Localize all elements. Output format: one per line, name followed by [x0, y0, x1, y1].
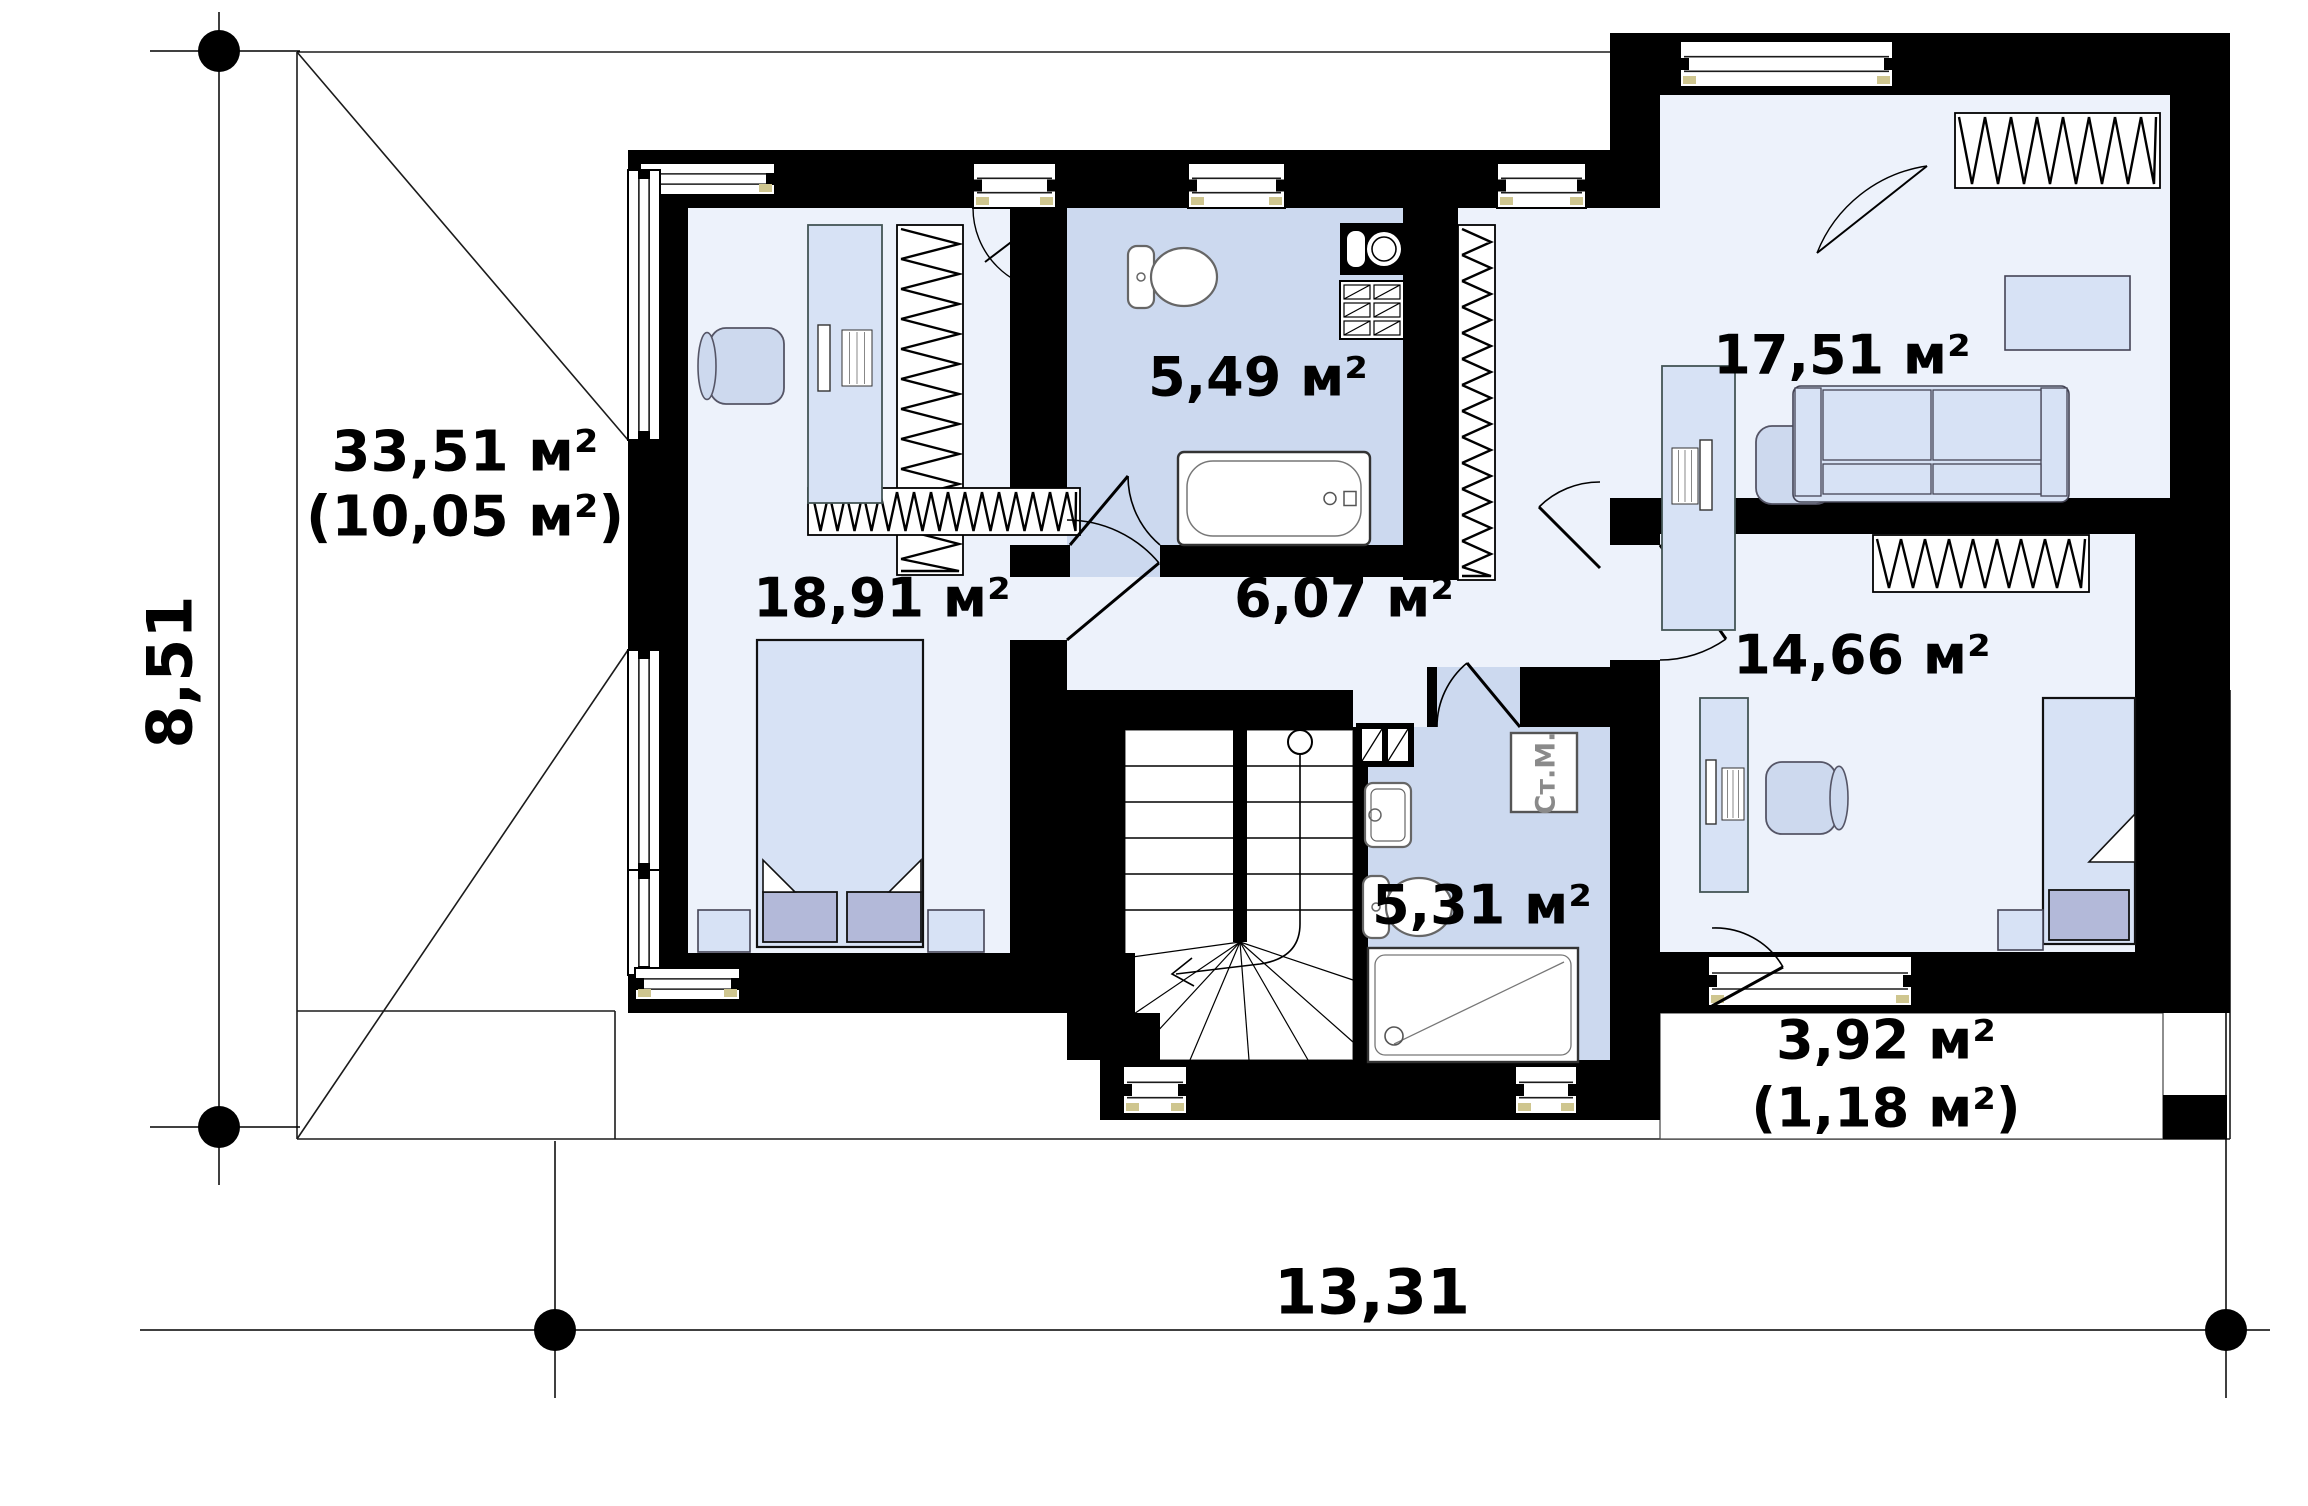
window-opening	[628, 870, 660, 975]
window-nub	[1680, 58, 1689, 70]
roof-line	[297, 650, 628, 1139]
window-sill	[759, 184, 772, 192]
wall	[2135, 534, 2230, 952]
window-nub	[1497, 180, 1506, 192]
bathtub	[1178, 452, 1370, 545]
window-sill	[1269, 197, 1282, 205]
win-terrace-door	[1708, 956, 1912, 1006]
hall-area: 6,07 м²	[1234, 567, 1454, 630]
wardrobe-office	[1955, 113, 2160, 188]
bed-bedroom	[757, 640, 923, 947]
window-sill	[1191, 197, 1204, 205]
window-nub	[1178, 1084, 1187, 1096]
window-sill	[1877, 76, 1890, 84]
window-sill	[1040, 197, 1053, 205]
roof-line	[297, 52, 628, 440]
office-area: 17,51 м²	[1713, 324, 1970, 387]
bathtub-tap	[1344, 492, 1356, 506]
window-nub	[973, 180, 982, 192]
window-nub	[1515, 1084, 1524, 1096]
nightstand-left	[698, 910, 750, 952]
wardrobe-room1466	[1873, 535, 2089, 592]
window-sill	[638, 989, 651, 997]
office-nook-floor	[1610, 208, 1660, 498]
room1466-door-gap	[1610, 545, 1660, 660]
window-nub	[638, 170, 650, 179]
terrace-area: 3,92 м²	[1776, 1009, 1996, 1072]
window-sill	[724, 989, 737, 997]
win-bottom-stair	[1123, 1066, 1187, 1114]
win-top-strip	[1497, 163, 1586, 208]
nightstand-right	[928, 910, 984, 952]
vanity-tray	[1347, 231, 1365, 267]
wall	[1610, 33, 1660, 208]
floor-plan: 33,51 м²(10,05 м²)18,91 м²5,49 м²6,07 м²…	[0, 0, 2308, 1506]
chair-back	[698, 333, 716, 400]
bed-pillow	[2049, 890, 2129, 940]
roof-left-area2: (10,05 м²)	[306, 485, 624, 550]
wall	[1010, 545, 1070, 577]
win-corner-bottom-v	[628, 870, 660, 975]
win-top-office	[1680, 41, 1893, 87]
wall	[1660, 498, 2170, 534]
win-bottom-bath	[1515, 1066, 1577, 1114]
window-sill	[1171, 1103, 1184, 1111]
win-left-upper	[628, 170, 660, 440]
wall	[2163, 1095, 2227, 1139]
table-office	[2005, 276, 2130, 350]
chair-bedroom	[698, 328, 784, 404]
terrace-area2: (1,18 м²)	[1751, 1077, 2020, 1140]
monitor	[818, 325, 830, 391]
sofa-cushion	[1933, 390, 2041, 460]
dimension-value-left: 8,51	[134, 596, 207, 749]
dimension-value-bottom: 13,31	[1274, 1256, 1470, 1329]
window-opening	[1680, 41, 1893, 87]
sofa-back	[1933, 464, 2041, 494]
window-opening	[628, 170, 660, 440]
window-nub	[1577, 180, 1586, 192]
window-nub	[1047, 180, 1056, 192]
wall	[1610, 498, 1660, 545]
window-nub	[731, 978, 740, 990]
window-sill	[1561, 1103, 1574, 1111]
bath-bottom-area: 5,31 м²	[1372, 874, 1592, 937]
shower-tray	[1368, 948, 1578, 1062]
bathtub-rim	[1178, 452, 1370, 545]
sofa-arm	[2041, 388, 2067, 496]
nightstand-left	[698, 910, 750, 952]
win-left-lower	[628, 650, 660, 872]
window-sill	[1500, 197, 1513, 205]
wall	[1610, 660, 1660, 952]
desk-office	[1662, 366, 1735, 630]
window-sill	[1683, 76, 1696, 84]
window-sill	[1518, 1103, 1531, 1111]
bath-top-area: 5,49 м²	[1148, 346, 1368, 409]
washer-label: Ст.М.	[1531, 732, 1562, 815]
glassblock-bath	[1356, 723, 1414, 767]
wall	[1520, 667, 1610, 727]
window-sill	[1896, 995, 1909, 1003]
window-opening	[628, 650, 660, 872]
table-office	[2005, 276, 2130, 350]
bed-room1466	[2043, 698, 2135, 944]
window-sill	[1570, 197, 1583, 205]
monitor	[1700, 440, 1712, 510]
wardrobe-corridor	[1458, 225, 1495, 580]
window-nub	[1568, 1084, 1577, 1096]
window-nub	[1708, 975, 1717, 987]
room-right-area: 14,66 м²	[1733, 624, 1990, 687]
win-top-bath	[1188, 163, 1285, 208]
sofa-arm	[1795, 388, 1821, 496]
bedroom-door-gap	[1010, 520, 1067, 640]
wall	[1403, 150, 1458, 580]
sofa-cushion	[1823, 390, 1931, 460]
monitor	[1706, 760, 1716, 824]
axis-dot	[534, 1309, 576, 1351]
chair-back	[1830, 766, 1848, 829]
chair-seat	[710, 328, 784, 404]
window-sill	[976, 197, 989, 205]
wall	[1010, 640, 1067, 1013]
chair-room1466	[1766, 762, 1848, 834]
sofa-office	[1793, 386, 2069, 502]
sofa-back	[1823, 464, 1931, 494]
window-sill	[1126, 1103, 1139, 1111]
window-nub	[1276, 180, 1285, 192]
chair-seat	[1766, 762, 1836, 834]
bedroom-area: 18,91 м²	[753, 567, 1010, 630]
window-nub	[766, 173, 775, 185]
stair-divider	[1233, 730, 1247, 942]
window-nub	[1903, 975, 1912, 987]
desk-room1466	[1700, 698, 1748, 892]
window-opening	[1708, 956, 1912, 1006]
bed-pillow	[763, 892, 837, 942]
axis-dot	[198, 1106, 240, 1148]
toilet-bowl	[1151, 248, 1217, 306]
window-nub	[1188, 180, 1197, 192]
win-corner-bottom-h	[635, 968, 740, 1000]
wall	[1610, 952, 1660, 1120]
roof-left-area: 33,51 м²	[332, 420, 599, 485]
sink-bath	[1365, 783, 1411, 847]
axis-dot	[2205, 1309, 2247, 1351]
bed-pillow	[847, 892, 921, 942]
toilet-top	[1128, 246, 1217, 308]
win-top-bedroom	[973, 163, 1056, 208]
wall	[2170, 33, 2230, 534]
wall	[1067, 690, 1353, 730]
bench-room1466	[1998, 910, 2043, 950]
wall	[1067, 730, 1125, 1060]
floor-plan-svg: 33,51 м²(10,05 м²)18,91 м²5,49 м²6,07 м²…	[0, 0, 2308, 1506]
stair-landing-floor	[1353, 690, 1427, 727]
window-nub	[635, 978, 644, 990]
window-nub	[1884, 58, 1893, 70]
bench-room1466	[1998, 910, 2043, 950]
wall	[1427, 667, 1437, 727]
axis-dot	[198, 30, 240, 72]
window-nub	[638, 650, 650, 659]
vanity-top	[1340, 223, 1404, 275]
desk-bedroom	[808, 225, 882, 503]
cabinet-top	[1340, 281, 1404, 339]
nightstand-right	[928, 910, 984, 952]
window-nub	[638, 431, 650, 440]
shower-tray	[1368, 948, 1578, 1062]
window-nub	[638, 870, 650, 879]
window-nub	[1123, 1084, 1132, 1096]
